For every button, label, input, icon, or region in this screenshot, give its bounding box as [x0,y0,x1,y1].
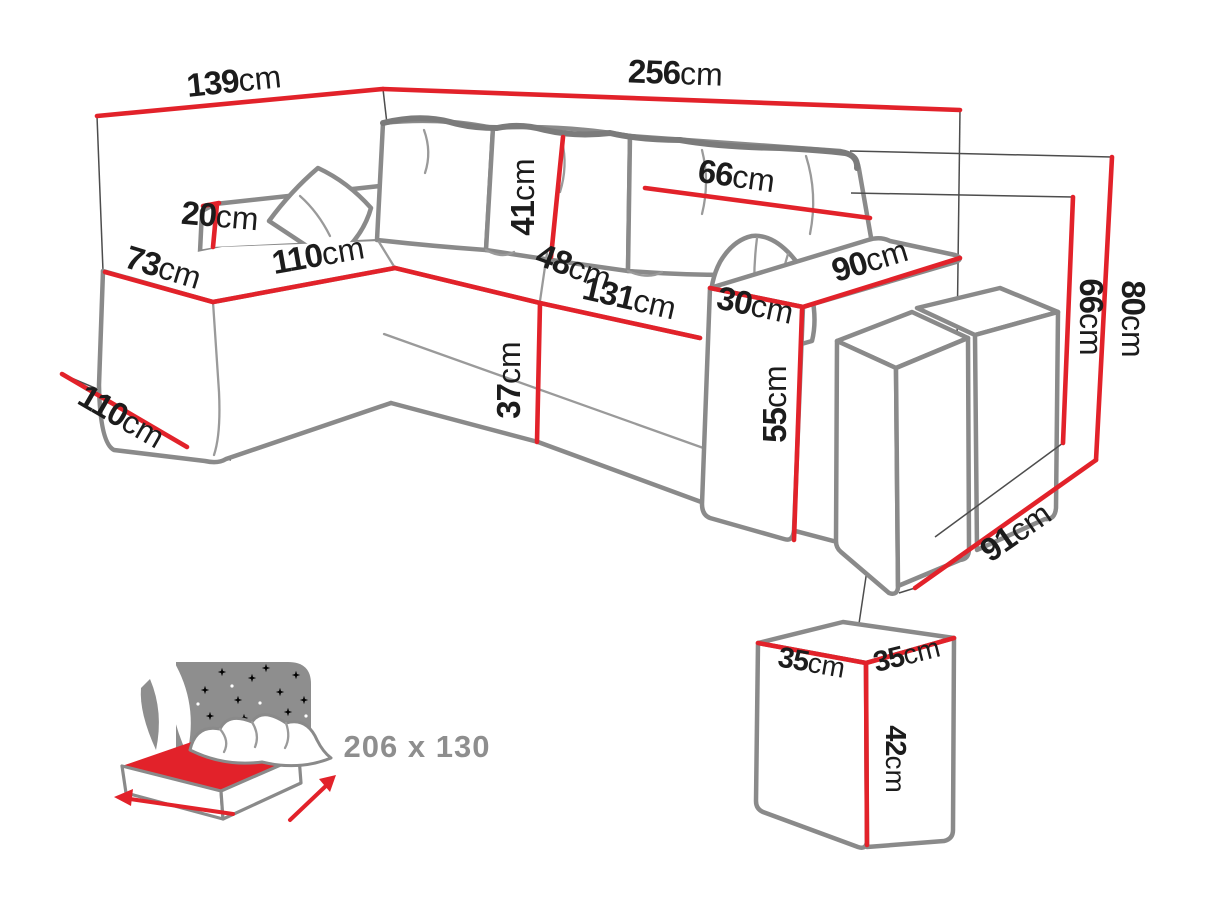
label-backrest-height: 66cm [1073,278,1110,355]
dim-backrest-height-line [1063,197,1073,443]
label-chaise-back-height: 20cm [180,194,260,238]
label-sleeping-area-size: 206 x 130 [344,729,491,764]
label-pouf-height: 42cm [879,725,911,793]
label-back-width-total: 256cm [627,52,723,92]
label-total-height: 80cm [1115,280,1152,357]
pouf-pair [836,288,1058,594]
label-seat-height: 37cm [490,341,527,418]
sofa-line-art [99,118,1058,593]
back-cushion-left [377,121,493,250]
moon-shard [141,679,159,750]
sofa-dimension-diagram: 139cm 256cm 66cm 20cm 73cm 110cm 41cm 48… [0,0,1214,911]
label-armrest-height: 55cm [756,365,793,442]
dim-pouf-height-line [866,663,867,845]
label-back-cushion-height: 41cm [504,158,541,235]
sleeping-area-icon [114,660,336,820]
dim-back-width-total-line [383,89,960,110]
dim-seat-height-line [537,303,540,442]
diagram-svg: 139cm 256cm 66cm 20cm 73cm 110cm 41cm 48… [0,0,1214,911]
label-back-width-left: 139cm [185,57,283,104]
